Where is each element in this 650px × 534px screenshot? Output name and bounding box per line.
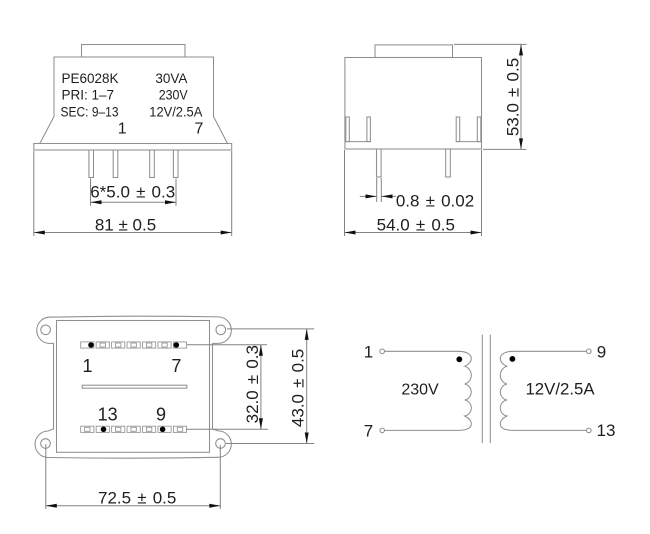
svg-text:7: 7: [195, 121, 204, 138]
svg-text:30VA: 30VA: [155, 71, 187, 86]
svg-text:1: 1: [364, 343, 373, 362]
svg-text:53.0 ± 0.5: 53.0 ± 0.5: [504, 58, 523, 136]
svg-text:72.5 ± 0.5: 72.5 ± 0.5: [98, 488, 176, 507]
svg-text:PRI: 1–7: PRI: 1–7: [62, 88, 115, 103]
svg-text:9: 9: [597, 342, 606, 361]
svg-text:0.8 ± 0.02: 0.8 ± 0.02: [396, 192, 474, 211]
svg-text:6*5.0 ± 0.3: 6*5.0 ± 0.3: [90, 183, 175, 202]
svg-text:7: 7: [364, 421, 373, 440]
svg-text:81 ± 0.5: 81 ± 0.5: [95, 215, 156, 234]
svg-text:230V: 230V: [159, 88, 188, 103]
svg-text:PE6028K: PE6028K: [62, 71, 119, 86]
svg-text:1: 1: [118, 121, 127, 138]
svg-text:32.0 ± 0.3: 32.0 ± 0.3: [243, 345, 262, 423]
svg-text:13: 13: [98, 405, 118, 425]
svg-text:7: 7: [171, 356, 181, 376]
svg-text:54.0 ± 0.5: 54.0 ± 0.5: [377, 216, 455, 235]
svg-text:1: 1: [82, 356, 92, 376]
svg-text:SEC: 9–13: SEC: 9–13: [61, 104, 119, 119]
svg-text:9: 9: [156, 405, 166, 425]
svg-text:43.0 ± 0.5: 43.0 ± 0.5: [289, 349, 308, 427]
svg-text:230V: 230V: [401, 381, 439, 398]
svg-text:12V/2.5A: 12V/2.5A: [525, 379, 595, 398]
svg-text:12V/2.5A: 12V/2.5A: [149, 104, 202, 119]
svg-text:13: 13: [597, 421, 616, 440]
